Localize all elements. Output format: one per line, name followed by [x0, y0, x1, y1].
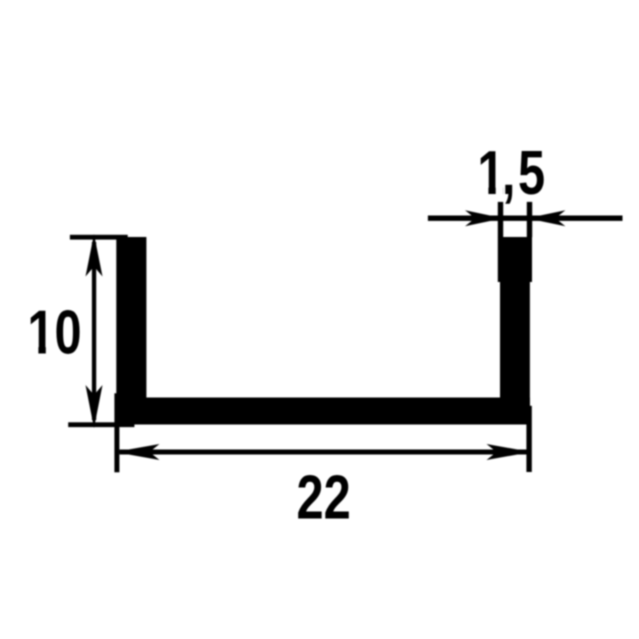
- svg-text:10: 10: [27, 297, 81, 367]
- svg-text:22: 22: [296, 462, 350, 532]
- svg-text:1,5: 1,5: [477, 137, 545, 207]
